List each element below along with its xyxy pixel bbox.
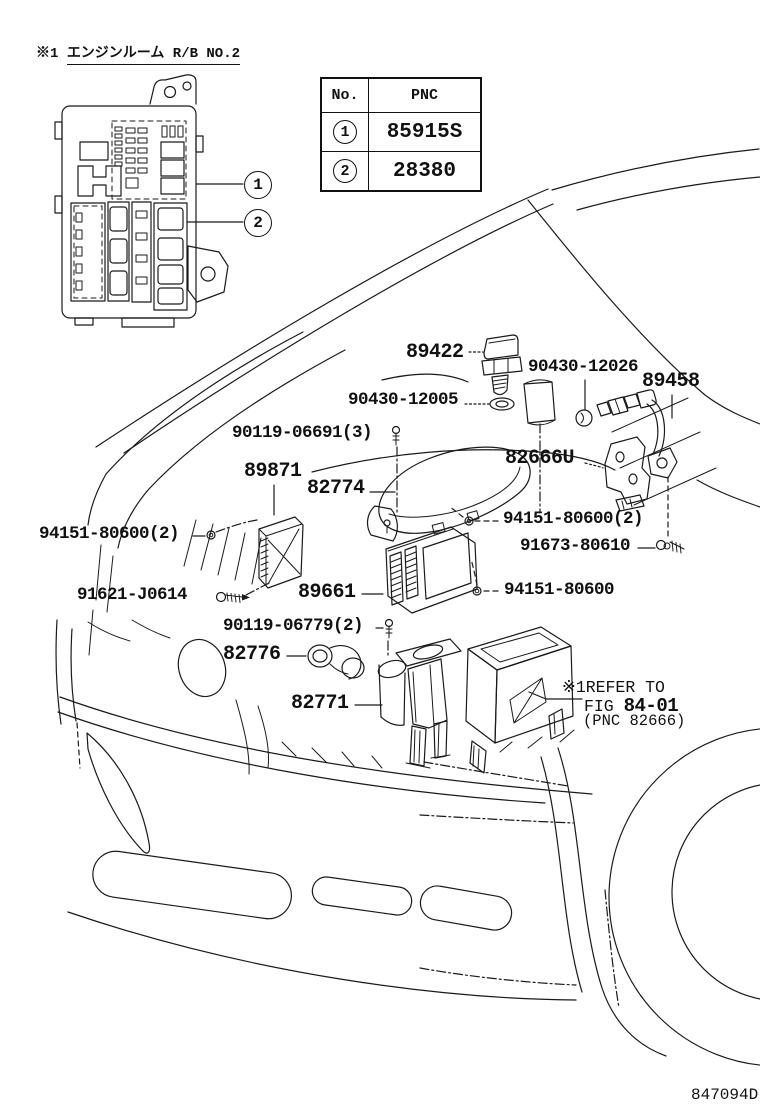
part-label-94151-80600-2-left: 94151-80600(2) [39, 526, 179, 544]
part-label-90119-06691: 90119-06691(3) [232, 425, 372, 443]
part-label-90430-12026: 90430-12026 [528, 359, 638, 377]
part-label-91621-J0614: 91621-J0614 [77, 587, 187, 605]
part-label-89458: 89458 [642, 372, 700, 392]
row1-pnc: 85915S [369, 113, 480, 151]
relay-block-drawing [55, 75, 243, 327]
callout-1-number: 1 [253, 176, 263, 194]
callout-circle-2: 2 [244, 209, 272, 237]
refer-note-line3: (PNC 82666) [583, 714, 685, 730]
part-label-82666U: 82666U [505, 449, 574, 469]
note-prefix: ※1 [36, 46, 58, 62]
pnc-table: No. PNC 1 85915S 2 28380 [320, 77, 482, 192]
row2-no-badge: 2 [333, 159, 357, 183]
parts-diagram-page: ※1 エンジンルーム R/B NO.2 1 2 No. PNC 1 85915S… [0, 0, 760, 1112]
gasket-90430-12005 [490, 398, 514, 410]
engine-room-rb-note: ※1 エンジンルーム R/B NO.2 [36, 42, 240, 62]
callout-circle-1: 1 [244, 171, 272, 199]
callout-2-number: 2 [253, 214, 263, 232]
washer-90430-12026 [576, 410, 592, 426]
note-title: エンジンルーム R/B NO.2 [67, 46, 240, 65]
bolt-90119-06691 [393, 427, 400, 446]
bolt-90119-06779 [386, 620, 393, 639]
part-label-94151-80600-right: 94151-80600 [504, 582, 614, 600]
part-label-82771: 82771 [291, 694, 349, 714]
row1-no: 1 [340, 124, 349, 141]
oil-pressure-sender-89458 [597, 390, 677, 478]
document-number: 847094D [691, 1086, 758, 1104]
part-label-90119-06779: 90119-06779(2) [223, 618, 363, 636]
row2-no: 2 [340, 163, 349, 180]
part-label-89422: 89422 [406, 343, 464, 363]
screw-91621-J0614 [217, 593, 251, 603]
part-label-89871: 89871 [244, 462, 302, 482]
part-label-91673-80610: 91673-80610 [520, 538, 630, 556]
table-row: 2 28380 [322, 151, 480, 190]
part-label-94151-80600-2-right: 94151-80600(2) [503, 511, 643, 529]
water-temp-sensor-89422 [482, 335, 522, 395]
part-label-82776: 82776 [223, 645, 281, 665]
part-label-90430-12005: 90430-12005 [348, 392, 458, 410]
row1-no-badge: 1 [333, 120, 357, 144]
screw-91673-80610 [657, 541, 685, 554]
injector-driver-89871 [259, 517, 303, 588]
col-pnc-header: PNC [369, 79, 480, 112]
part-label-89661: 89661 [298, 583, 356, 603]
grommet-82776 [308, 645, 364, 679]
col-no-header: No. [322, 79, 369, 112]
ecm-89661 [386, 527, 477, 613]
pnc-table-header: No. PNC [322, 79, 480, 112]
bracket-82666 [605, 437, 650, 511]
cover-refer-fig-84-01 [466, 627, 573, 773]
engine-boss [524, 380, 555, 425]
table-row: 1 85915S [322, 112, 480, 151]
bracket-82771 [376, 639, 461, 768]
part-label-82774: 82774 [307, 479, 365, 499]
car-outline [56, 149, 760, 1066]
row2-pnc: 28380 [369, 152, 480, 190]
